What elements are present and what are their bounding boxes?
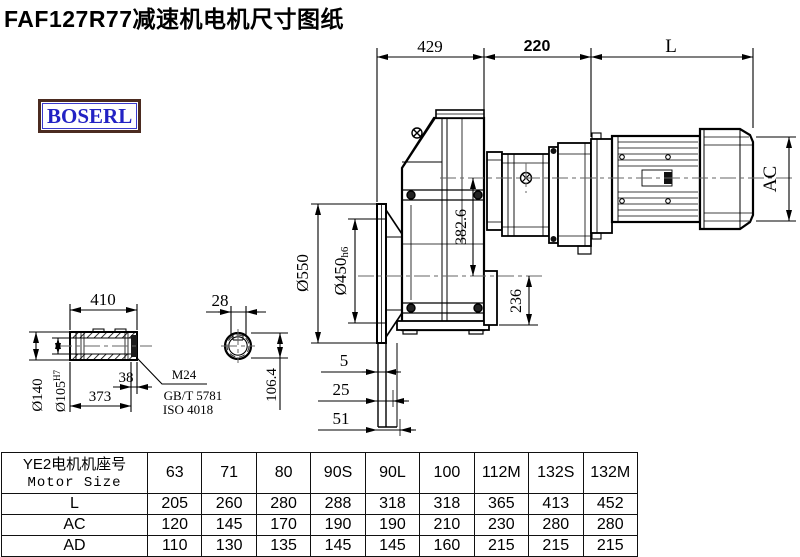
spec-table-body: YE2电机机座号Motor Size63718090S90L100112M132… bbox=[2, 453, 638, 557]
dia105-tolerance: H7 bbox=[52, 369, 62, 380]
frame-size-column-header: 63 bbox=[148, 453, 202, 494]
value-cell: 190 bbox=[365, 515, 419, 536]
dia450-value: Ø450 bbox=[331, 258, 350, 296]
row-label: L bbox=[2, 494, 148, 515]
motor-body bbox=[612, 136, 700, 222]
value-cell: 145 bbox=[311, 536, 365, 557]
dim-106-label: 106.4 bbox=[264, 368, 280, 402]
value-cell: 130 bbox=[202, 536, 256, 557]
value-cell: 120 bbox=[148, 515, 202, 536]
value-cell: 145 bbox=[365, 536, 419, 557]
dim-28-label: 28 bbox=[212, 291, 229, 310]
dia105-value: Ø105 bbox=[54, 381, 69, 412]
frame-size-column-header: 132M bbox=[583, 453, 638, 494]
row-label: AD bbox=[2, 536, 148, 557]
table-row: AC120145170190190210230280280 bbox=[2, 515, 638, 536]
dimension-drawing: 429 220 L AC Ø550 Ø450h6 382.6 236 5 25 … bbox=[0, 0, 800, 455]
dim-236-label: 236 bbox=[508, 289, 525, 313]
motor-size-header-cn: YE2电机机座号 bbox=[2, 455, 147, 474]
frame-size-column-header: 71 bbox=[202, 453, 256, 494]
standard-gb-label: GB/T 5781 bbox=[164, 388, 223, 403]
standard-iso-label: ISO 4018 bbox=[163, 402, 213, 417]
value-cell: 205 bbox=[148, 494, 202, 515]
frame-size-column-header: 90S bbox=[311, 453, 365, 494]
dim-410-label: 410 bbox=[90, 290, 116, 309]
value-cell: 135 bbox=[256, 536, 310, 557]
value-cell: 145 bbox=[202, 515, 256, 536]
value-cell: 210 bbox=[420, 515, 474, 536]
frame-size-column-header: 112M bbox=[474, 453, 528, 494]
dim-25-label: 25 bbox=[333, 380, 350, 399]
value-cell: 413 bbox=[529, 494, 583, 515]
dim-220-label: 220 bbox=[524, 38, 551, 55]
value-cell: 215 bbox=[474, 536, 528, 557]
value-cell: 190 bbox=[311, 515, 365, 536]
dim-dia105-label: Ø105H7 bbox=[52, 369, 69, 412]
hollow-shaft-detail bbox=[70, 329, 137, 360]
value-cell: 288 bbox=[311, 494, 365, 515]
thread-label: M24 bbox=[172, 367, 197, 382]
value-cell: 280 bbox=[529, 515, 583, 536]
value-cell: 110 bbox=[148, 536, 202, 557]
value-cell: 365 bbox=[474, 494, 528, 515]
dia450-tolerance: h6 bbox=[339, 246, 351, 258]
value-cell: 230 bbox=[474, 515, 528, 536]
dim-38-label: 38 bbox=[119, 370, 134, 386]
table-row: L205260280288318318365413452 bbox=[2, 494, 638, 515]
frame-size-column-header: 80 bbox=[256, 453, 310, 494]
drain-boss bbox=[484, 271, 497, 325]
spec-table: YE2电机机座号Motor Size63718090S90L100112M132… bbox=[1, 452, 638, 557]
table-row: AD110130135145145160215215215 bbox=[2, 536, 638, 557]
gearbox-housing bbox=[397, 110, 489, 334]
frame-size-column-header: 90L bbox=[365, 453, 419, 494]
dim-dia450-label: Ø450h6 bbox=[331, 246, 351, 295]
dim-51-label: 51 bbox=[333, 409, 350, 428]
value-cell: 160 bbox=[420, 536, 474, 557]
motor-size-header-en: Motor Size bbox=[2, 474, 147, 492]
dim-5-label: 5 bbox=[340, 351, 349, 370]
dim-dia140-label: Ø140 bbox=[30, 378, 46, 411]
value-cell: 215 bbox=[583, 536, 638, 557]
value-cell: 318 bbox=[365, 494, 419, 515]
motor-size-header: YE2电机机座号Motor Size bbox=[2, 453, 148, 494]
dim-429-label: 429 bbox=[417, 37, 443, 56]
value-cell: 452 bbox=[583, 494, 638, 515]
dim-373-label: 373 bbox=[89, 389, 112, 405]
frame-size-column-header: 132S bbox=[529, 453, 583, 494]
value-cell: 280 bbox=[583, 515, 638, 536]
motor-adapter bbox=[487, 133, 612, 254]
dim-dia550-label: Ø550 bbox=[293, 254, 312, 292]
value-cell: 318 bbox=[420, 494, 474, 515]
dim-L-label: L bbox=[665, 36, 677, 57]
value-cell: 170 bbox=[256, 515, 310, 536]
value-cell: 215 bbox=[529, 536, 583, 557]
row-label: AC bbox=[2, 515, 148, 536]
value-cell: 260 bbox=[202, 494, 256, 515]
value-cell: 280 bbox=[256, 494, 310, 515]
dim-AC-label: AC bbox=[760, 166, 781, 192]
dim-382-label: 382.6 bbox=[453, 209, 470, 245]
frame-size-column-header: 100 bbox=[420, 453, 474, 494]
fan-cowl bbox=[700, 129, 753, 229]
